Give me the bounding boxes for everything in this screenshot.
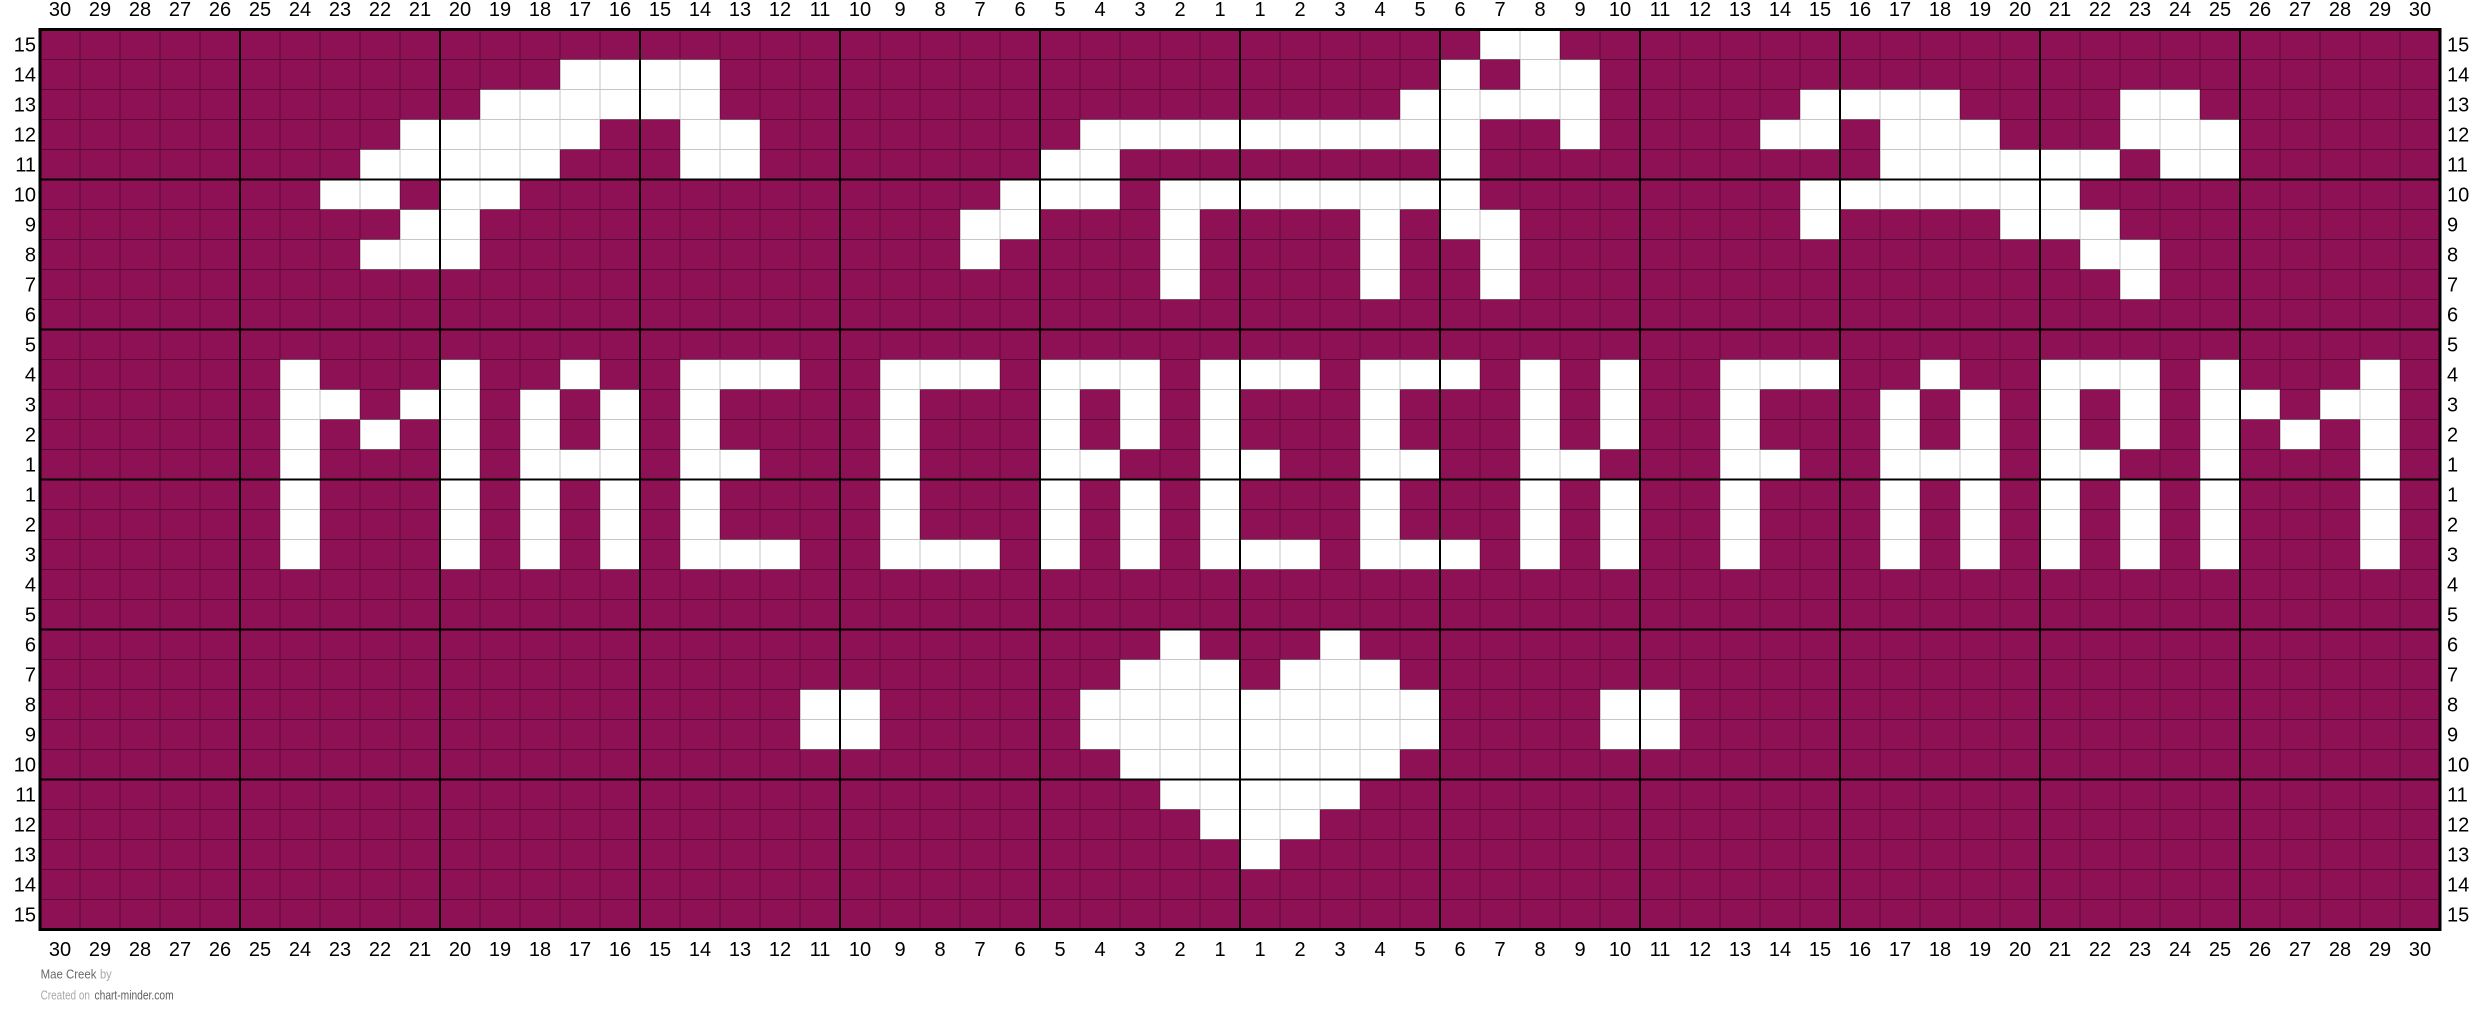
svg-text:23: 23	[329, 0, 351, 21]
svg-text:3: 3	[1134, 939, 1145, 961]
svg-text:20: 20	[449, 0, 471, 21]
svg-text:25: 25	[249, 939, 271, 961]
svg-text:11: 11	[1650, 0, 1671, 21]
svg-text:28: 28	[2329, 939, 2351, 961]
svg-text:19: 19	[1969, 0, 1991, 21]
svg-text:2: 2	[2447, 515, 2458, 537]
svg-text:15: 15	[14, 905, 36, 927]
svg-text:15: 15	[2447, 35, 2469, 57]
svg-text:17: 17	[569, 0, 591, 21]
svg-text:5: 5	[1414, 939, 1425, 961]
svg-text:3: 3	[2447, 545, 2458, 567]
svg-text:19: 19	[489, 0, 511, 21]
svg-text:4: 4	[1374, 0, 1385, 21]
svg-text:2: 2	[1294, 0, 1305, 21]
svg-text:10: 10	[14, 185, 36, 207]
svg-text:12: 12	[2447, 815, 2469, 837]
svg-text:10: 10	[849, 0, 871, 21]
svg-text:7: 7	[2447, 665, 2458, 687]
svg-text:2: 2	[1174, 0, 1185, 21]
svg-text:14: 14	[14, 65, 36, 87]
svg-text:8: 8	[1534, 0, 1545, 21]
svg-text:7: 7	[1494, 939, 1505, 961]
svg-text:8: 8	[2447, 695, 2458, 717]
svg-text:27: 27	[2289, 939, 2311, 961]
svg-text:2: 2	[25, 515, 36, 537]
svg-text:1: 1	[2447, 455, 2458, 477]
svg-text:12: 12	[1689, 939, 1711, 961]
svg-text:14: 14	[2447, 65, 2469, 87]
svg-text:2: 2	[1174, 939, 1185, 961]
svg-text:12: 12	[1689, 0, 1711, 21]
svg-text:22: 22	[369, 939, 391, 961]
svg-text:5: 5	[1054, 939, 1065, 961]
svg-text:6: 6	[2447, 305, 2458, 327]
svg-text:11: 11	[15, 155, 36, 177]
svg-text:11: 11	[1650, 939, 1671, 961]
svg-text:10: 10	[2447, 185, 2469, 207]
svg-text:25: 25	[249, 0, 271, 21]
svg-text:6: 6	[1014, 939, 1025, 961]
svg-text:28: 28	[129, 939, 151, 961]
svg-text:4: 4	[25, 575, 36, 597]
svg-text:20: 20	[2009, 939, 2031, 961]
svg-text:30: 30	[49, 939, 71, 961]
svg-text:22: 22	[369, 0, 391, 21]
svg-text:1: 1	[1254, 0, 1265, 21]
svg-text:25: 25	[2209, 0, 2231, 21]
svg-text:5: 5	[25, 605, 36, 627]
svg-text:6: 6	[1454, 939, 1465, 961]
svg-text:8: 8	[934, 939, 945, 961]
svg-text:13: 13	[14, 845, 36, 867]
svg-text:9: 9	[1574, 0, 1585, 21]
svg-text:24: 24	[2169, 0, 2191, 21]
svg-text:22: 22	[2089, 939, 2111, 961]
svg-text:28: 28	[129, 0, 151, 21]
svg-text:14: 14	[2447, 875, 2469, 897]
svg-text:14: 14	[1769, 0, 1791, 21]
svg-text:5: 5	[2447, 335, 2458, 357]
svg-text:Mae Creek: Mae Creek	[41, 968, 98, 982]
svg-text:3: 3	[1134, 0, 1145, 21]
svg-text:11: 11	[2447, 155, 2468, 177]
svg-text:16: 16	[609, 0, 631, 21]
svg-text:14: 14	[689, 939, 711, 961]
svg-text:13: 13	[14, 95, 36, 117]
svg-text:8: 8	[1534, 939, 1545, 961]
svg-text:29: 29	[89, 939, 111, 961]
svg-text:by: by	[100, 968, 112, 982]
svg-text:20: 20	[449, 939, 471, 961]
svg-text:16: 16	[1849, 0, 1871, 21]
svg-text:6: 6	[1014, 0, 1025, 21]
svg-text:15: 15	[14, 35, 36, 57]
svg-text:10: 10	[1609, 0, 1631, 21]
svg-text:30: 30	[49, 0, 71, 21]
svg-text:27: 27	[2289, 0, 2311, 21]
svg-text:30: 30	[2409, 0, 2431, 21]
svg-text:14: 14	[689, 0, 711, 21]
svg-text:18: 18	[1929, 0, 1951, 21]
svg-text:11: 11	[2447, 785, 2468, 807]
svg-text:24: 24	[2169, 939, 2191, 961]
svg-text:12: 12	[769, 939, 791, 961]
svg-text:11: 11	[810, 0, 831, 21]
svg-text:6: 6	[25, 635, 36, 657]
svg-text:17: 17	[1889, 939, 1911, 961]
svg-text:7: 7	[25, 665, 36, 687]
svg-text:4: 4	[2447, 365, 2458, 387]
svg-text:13: 13	[2447, 845, 2469, 867]
svg-text:9: 9	[25, 725, 36, 747]
svg-text:9: 9	[894, 0, 905, 21]
svg-text:12: 12	[14, 125, 36, 147]
svg-text:4: 4	[2447, 575, 2458, 597]
svg-text:27: 27	[169, 939, 191, 961]
svg-text:7: 7	[25, 275, 36, 297]
svg-text:1: 1	[1254, 939, 1265, 961]
svg-text:15: 15	[649, 0, 671, 21]
svg-text:chart-minder.com: chart-minder.com	[95, 988, 174, 1002]
svg-text:29: 29	[2369, 0, 2391, 21]
svg-text:9: 9	[25, 215, 36, 237]
svg-text:13: 13	[729, 0, 751, 21]
svg-text:5: 5	[1054, 0, 1065, 21]
svg-text:4: 4	[1094, 0, 1105, 21]
svg-text:26: 26	[209, 0, 231, 21]
svg-text:8: 8	[934, 0, 945, 21]
svg-text:21: 21	[409, 939, 431, 961]
svg-text:2: 2	[2447, 425, 2458, 447]
svg-text:27: 27	[169, 0, 191, 21]
svg-text:8: 8	[25, 695, 36, 717]
svg-text:15: 15	[1809, 0, 1831, 21]
svg-text:20: 20	[2009, 0, 2031, 21]
svg-text:19: 19	[1969, 939, 1991, 961]
svg-text:10: 10	[2447, 755, 2469, 777]
svg-text:9: 9	[2447, 725, 2458, 747]
svg-text:1: 1	[25, 455, 36, 477]
svg-text:7: 7	[974, 939, 985, 961]
svg-text:26: 26	[2249, 939, 2271, 961]
svg-text:8: 8	[25, 245, 36, 267]
svg-text:17: 17	[569, 939, 591, 961]
svg-text:15: 15	[1809, 939, 1831, 961]
svg-text:13: 13	[1729, 0, 1751, 21]
svg-text:14: 14	[1769, 939, 1791, 961]
svg-text:9: 9	[894, 939, 905, 961]
svg-text:5: 5	[2447, 605, 2458, 627]
svg-text:21: 21	[2049, 0, 2071, 21]
svg-text:29: 29	[2369, 939, 2391, 961]
svg-text:1: 1	[1214, 939, 1225, 961]
svg-text:3: 3	[25, 545, 36, 567]
svg-text:2: 2	[25, 425, 36, 447]
svg-text:19: 19	[489, 939, 511, 961]
svg-text:3: 3	[1334, 0, 1345, 21]
svg-text:23: 23	[2129, 939, 2151, 961]
svg-text:10: 10	[1609, 939, 1631, 961]
svg-text:6: 6	[25, 305, 36, 327]
svg-text:4: 4	[25, 365, 36, 387]
svg-text:16: 16	[1849, 939, 1871, 961]
svg-text:12: 12	[2447, 125, 2469, 147]
svg-text:13: 13	[729, 939, 751, 961]
svg-text:3: 3	[2447, 395, 2458, 417]
svg-text:28: 28	[2329, 0, 2351, 21]
svg-text:29: 29	[89, 0, 111, 21]
svg-text:10: 10	[849, 939, 871, 961]
svg-text:30: 30	[2409, 939, 2431, 961]
svg-text:10: 10	[14, 755, 36, 777]
svg-text:13: 13	[2447, 95, 2469, 117]
svg-text:1: 1	[1214, 0, 1225, 21]
svg-text:7: 7	[2447, 275, 2458, 297]
svg-text:26: 26	[2249, 0, 2271, 21]
svg-text:3: 3	[1334, 939, 1345, 961]
svg-text:18: 18	[529, 0, 551, 21]
svg-text:21: 21	[409, 0, 431, 21]
svg-text:26: 26	[209, 939, 231, 961]
svg-text:12: 12	[769, 0, 791, 21]
svg-text:6: 6	[1454, 0, 1465, 21]
svg-text:5: 5	[25, 335, 36, 357]
svg-text:18: 18	[1929, 939, 1951, 961]
svg-text:24: 24	[289, 0, 311, 21]
svg-text:5: 5	[1414, 0, 1425, 21]
svg-text:1: 1	[25, 485, 36, 507]
svg-text:21: 21	[2049, 939, 2071, 961]
svg-text:11: 11	[15, 785, 36, 807]
svg-text:23: 23	[329, 939, 351, 961]
svg-text:7: 7	[1494, 0, 1505, 21]
svg-text:23: 23	[2129, 0, 2151, 21]
svg-text:18: 18	[529, 939, 551, 961]
svg-text:8: 8	[2447, 245, 2458, 267]
svg-text:22: 22	[2089, 0, 2111, 21]
svg-text:12: 12	[14, 815, 36, 837]
svg-text:17: 17	[1889, 0, 1911, 21]
svg-text:15: 15	[2447, 905, 2469, 927]
svg-text:4: 4	[1094, 939, 1105, 961]
svg-text:7: 7	[974, 0, 985, 21]
svg-text:1: 1	[2447, 485, 2458, 507]
svg-text:14: 14	[14, 875, 36, 897]
svg-text:Created on: Created on	[41, 988, 90, 1002]
svg-text:15: 15	[649, 939, 671, 961]
svg-text:25: 25	[2209, 939, 2231, 961]
svg-text:13: 13	[1729, 939, 1751, 961]
svg-text:16: 16	[609, 939, 631, 961]
svg-text:11: 11	[810, 939, 831, 961]
svg-text:9: 9	[2447, 215, 2458, 237]
svg-text:6: 6	[2447, 635, 2458, 657]
svg-text:2: 2	[1294, 939, 1305, 961]
svg-text:4: 4	[1374, 939, 1385, 961]
svg-text:3: 3	[25, 395, 36, 417]
svg-text:9: 9	[1574, 939, 1585, 961]
svg-text:24: 24	[289, 939, 311, 961]
